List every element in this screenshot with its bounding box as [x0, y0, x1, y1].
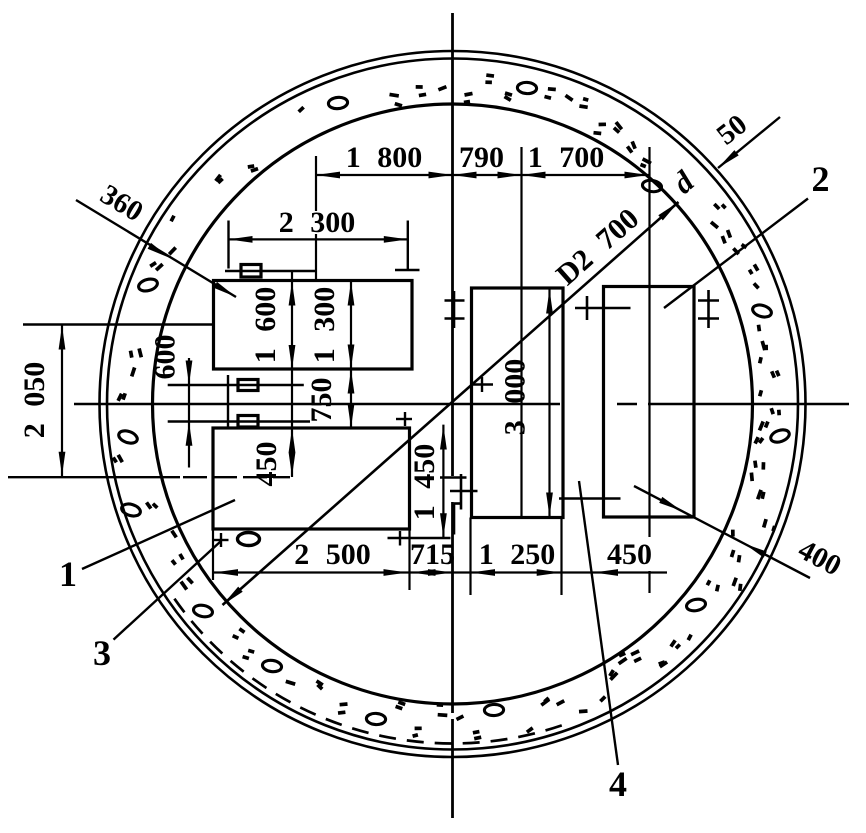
svg-text:2 300: 2 300	[279, 206, 356, 239]
svg-text:3 000: 3 000	[499, 359, 532, 436]
svg-text:790: 790	[459, 141, 504, 174]
svg-text:1 600: 1 600	[249, 287, 282, 364]
svg-text:D2 700: D2 700	[550, 202, 645, 292]
svg-text:360: 360	[95, 178, 149, 228]
svg-text:1 450: 1 450	[408, 444, 441, 521]
svg-text:1 300: 1 300	[308, 287, 341, 364]
svg-text:1 250: 1 250	[479, 538, 556, 571]
svg-text:d: d	[666, 164, 701, 201]
svg-text:2 050: 2 050	[18, 362, 51, 439]
svg-text:600: 600	[149, 335, 182, 380]
svg-text:1 700: 1 700	[528, 141, 605, 174]
svg-text:2 500: 2 500	[294, 538, 371, 571]
svg-text:450: 450	[250, 442, 283, 487]
svg-text:715: 715	[410, 538, 455, 571]
svg-text:750: 750	[305, 378, 338, 423]
svg-text:1 800: 1 800	[346, 141, 423, 174]
svg-text:1: 1	[59, 554, 77, 594]
svg-text:2: 2	[812, 159, 830, 199]
svg-text:3: 3	[93, 633, 111, 673]
svg-text:4: 4	[609, 764, 627, 804]
svg-text:400: 400	[793, 534, 846, 583]
svg-text:450: 450	[607, 538, 652, 571]
